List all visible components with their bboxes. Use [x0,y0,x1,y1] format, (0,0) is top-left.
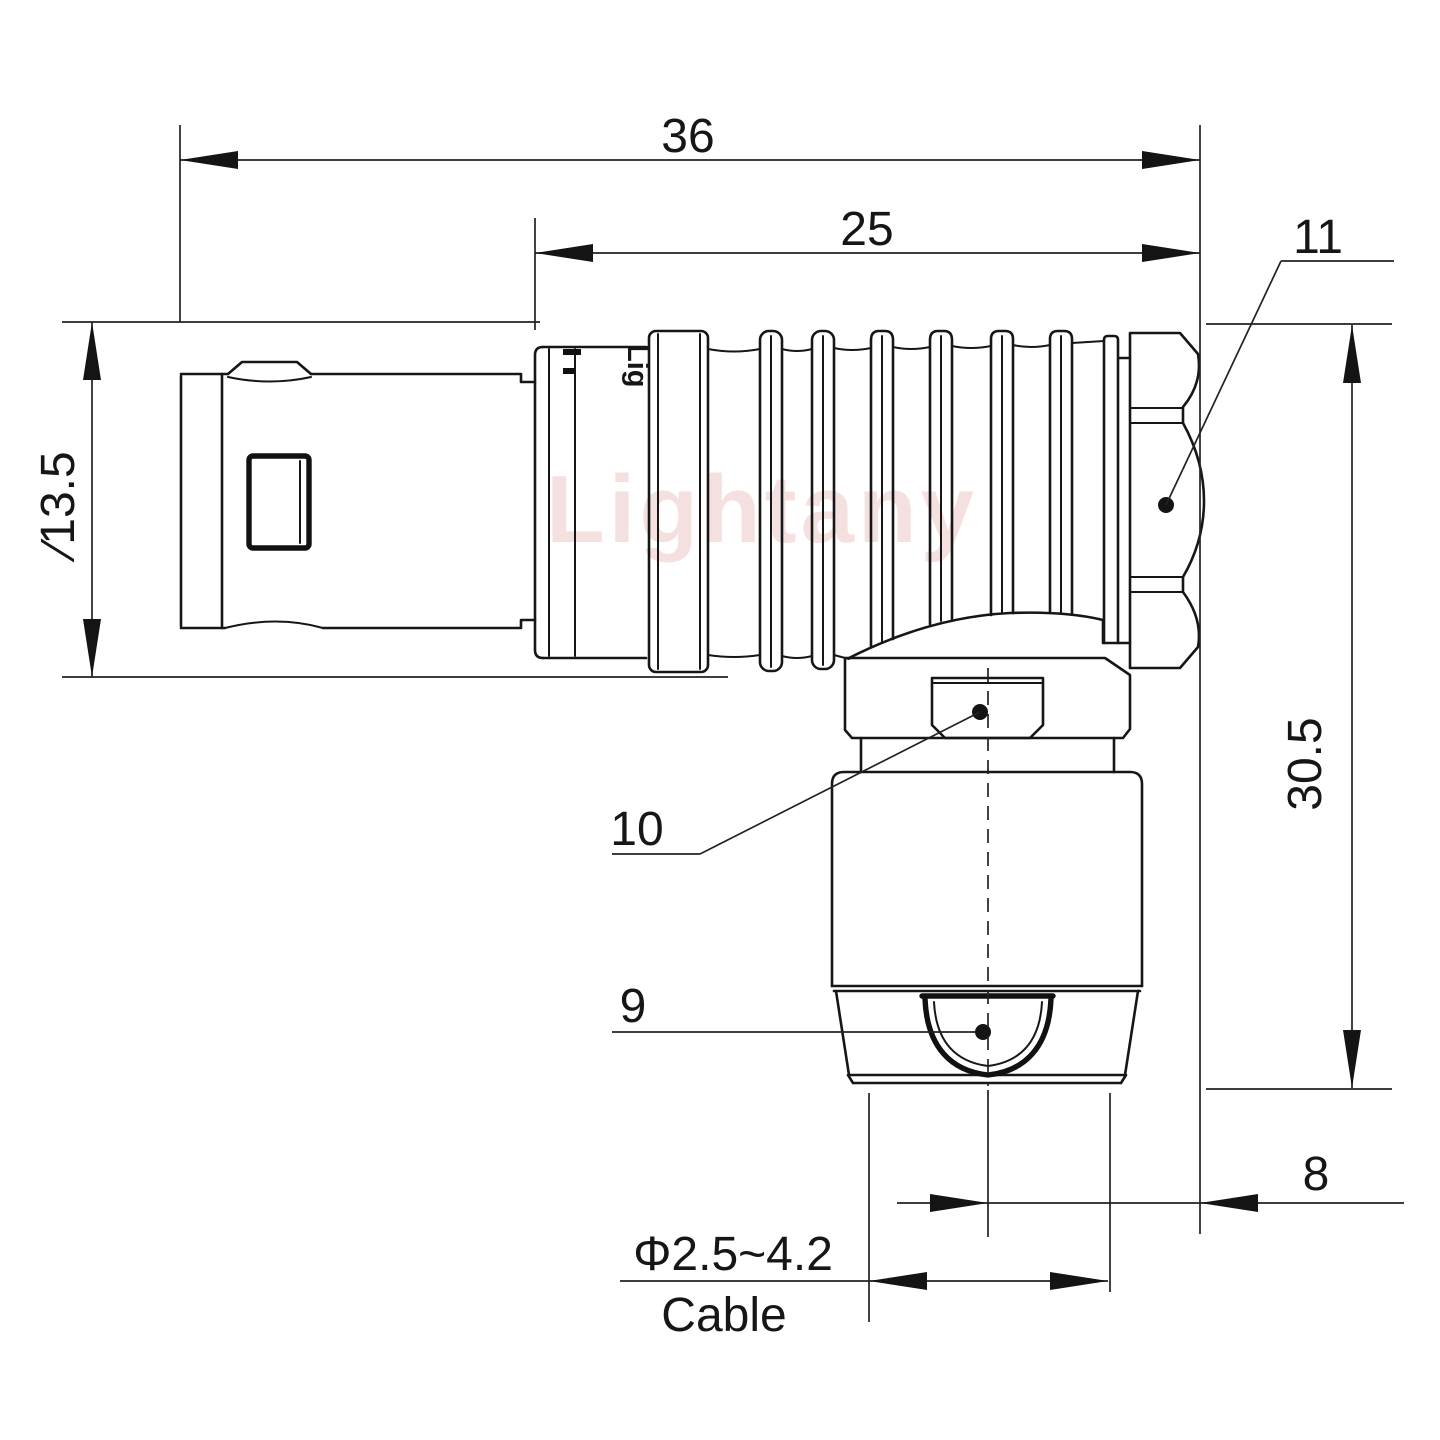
cable-range-label: Φ2.5~4.2 [633,1228,833,1281]
gland-nut-facet [932,678,1043,738]
arrowhead-down [1343,1030,1361,1088]
connector-elbow-drawing: Lightany [0,0,1440,1440]
dimension-25: 25 [535,203,1200,330]
arrowhead-left [535,244,593,262]
callout-9-label: 9 [620,980,647,1033]
front-tube-outline [181,362,535,628]
dim-36-label: 36 [661,110,714,163]
callout-11-label: 11 [1293,211,1343,264]
coupling-nut-outline [1130,333,1204,668]
dimension-30-5: 30.5 [1206,324,1392,1089]
callout-10: 10 [610,712,980,856]
arrowhead-up [1343,325,1361,383]
dim-13-5-label: ∕13.5 [32,451,85,562]
dim-8-label: 8 [1303,1148,1330,1201]
dim-25-label: 25 [840,203,893,256]
cable-word-label: Cable [661,1289,786,1342]
arrowhead-left [1200,1194,1258,1212]
arrowhead-left [180,151,238,169]
arrowhead-right [930,1194,988,1212]
arrowhead-left [869,1272,927,1290]
dimension-8: 8 [897,1090,1404,1237]
arrowhead-right [1142,244,1200,262]
elbow-curve [849,613,1130,658]
sleeve-marking-text: Lig [621,344,653,388]
arrowhead-down [83,619,101,677]
arrowhead-up [83,322,101,380]
arrowhead-right [1142,151,1200,169]
watermark-text: Lightany [546,456,978,563]
sleeve-brand-marking: Lig [563,344,653,388]
spacer-ring [1104,336,1130,643]
callout-10-label: 10 [610,803,663,856]
technical-drawing-page: Lightany [0,0,1440,1440]
callout-9: 9 [612,980,975,1033]
arrowhead-right [1050,1272,1108,1290]
dimension-cable: Φ2.5~4.2 Cable [620,1093,1110,1342]
dim-30-5-label: 30.5 [1279,717,1332,810]
key-bump [228,362,311,374]
